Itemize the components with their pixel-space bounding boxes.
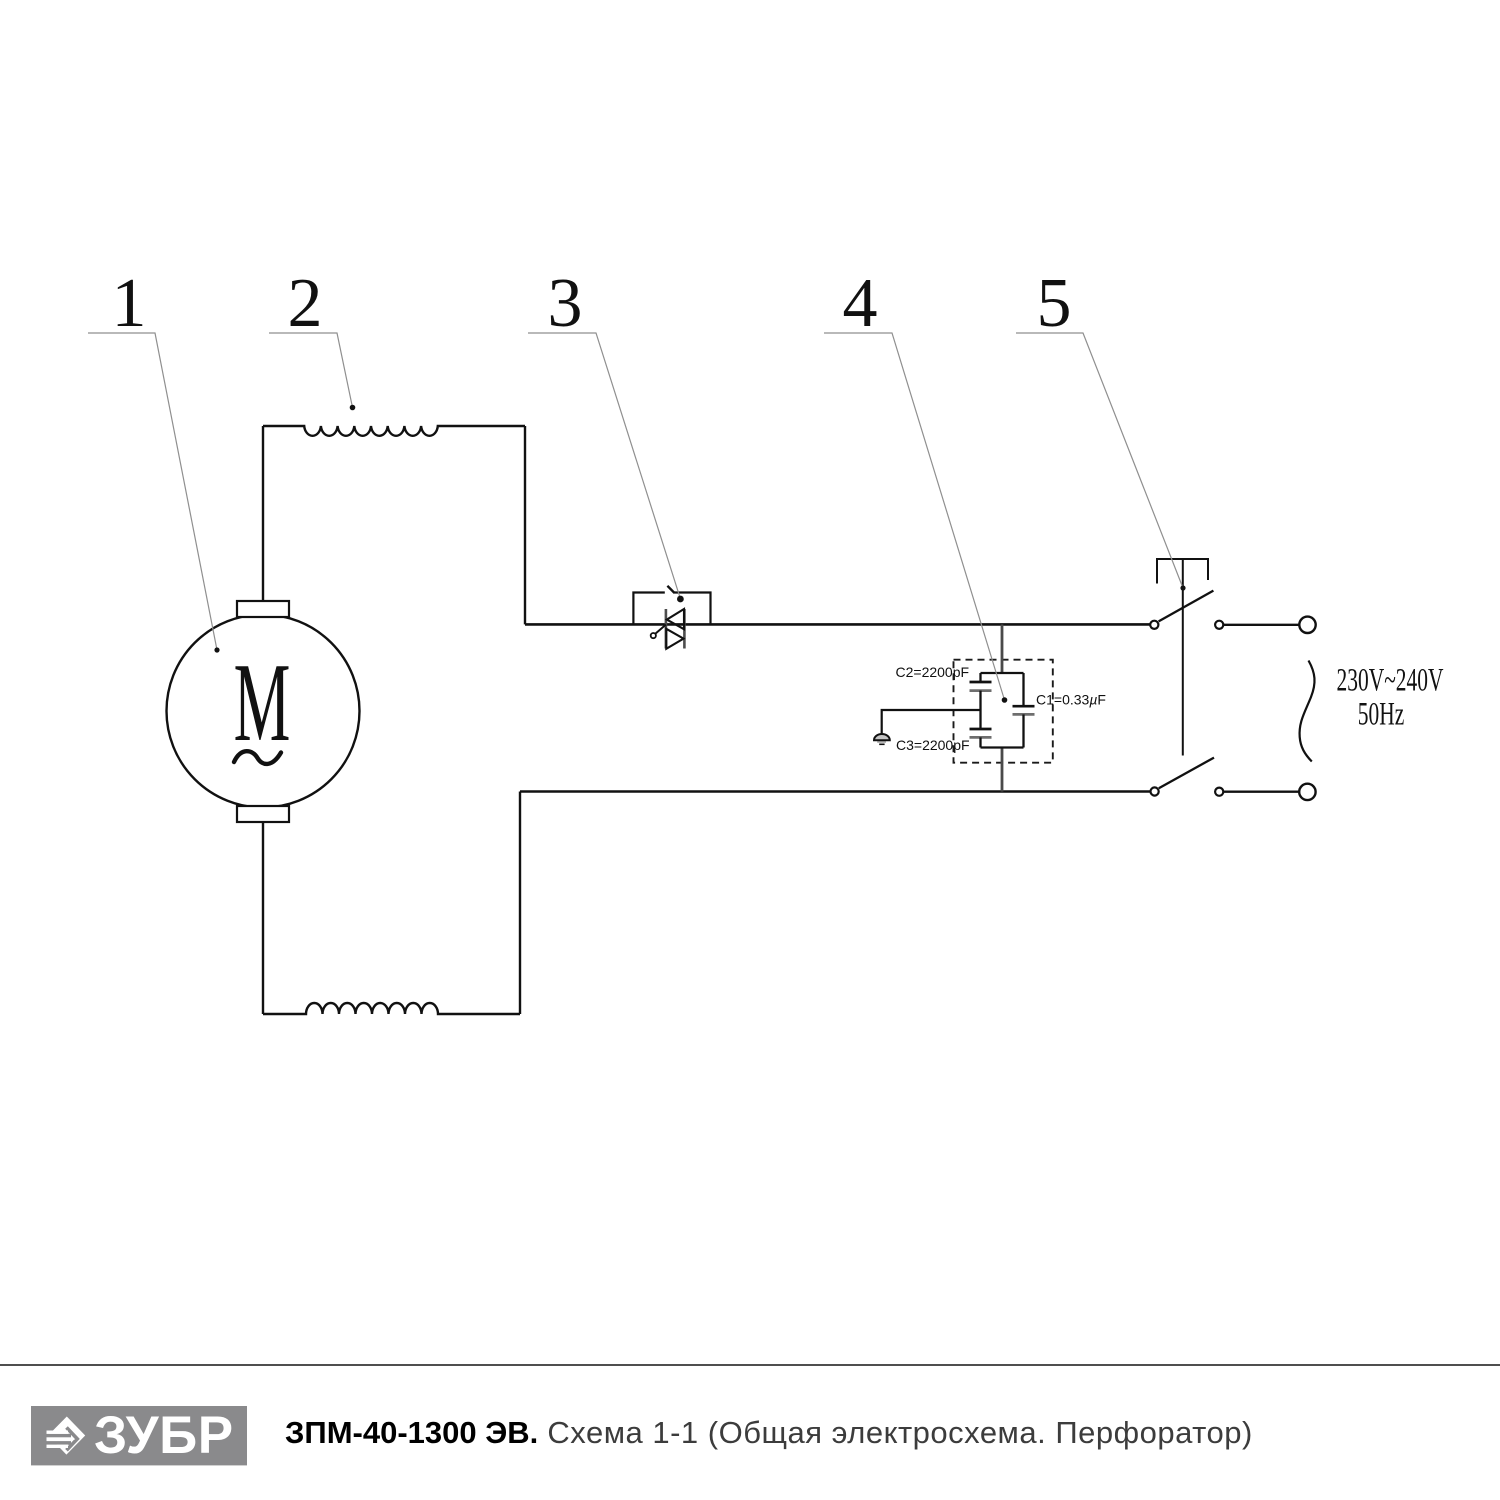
svg-text:3: 3 bbox=[548, 265, 583, 342]
svg-text:4: 4 bbox=[843, 265, 878, 342]
svg-text:ЗПМ-40-1300 ЭВ. Схема 1-1 (Общ: ЗПМ-40-1300 ЭВ. Схема 1-1 (Общая электро… bbox=[285, 1415, 1253, 1450]
svg-text:50Hz: 50Hz bbox=[1358, 696, 1404, 733]
svg-text:2: 2 bbox=[288, 265, 323, 342]
svg-text:C2=2200pF: C2=2200pF bbox=[896, 664, 970, 680]
svg-text:1: 1 bbox=[112, 265, 147, 342]
svg-text:C1=0.33µF: C1=0.33µF bbox=[1036, 692, 1106, 708]
svg-text:ЗУБР: ЗУБР bbox=[94, 1406, 234, 1465]
svg-text:M: M bbox=[234, 640, 291, 764]
svg-text:5: 5 bbox=[1037, 265, 1072, 342]
svg-text:230V~240V: 230V~240V bbox=[1337, 662, 1444, 699]
svg-text:C3=2200pF: C3=2200pF bbox=[896, 737, 970, 753]
